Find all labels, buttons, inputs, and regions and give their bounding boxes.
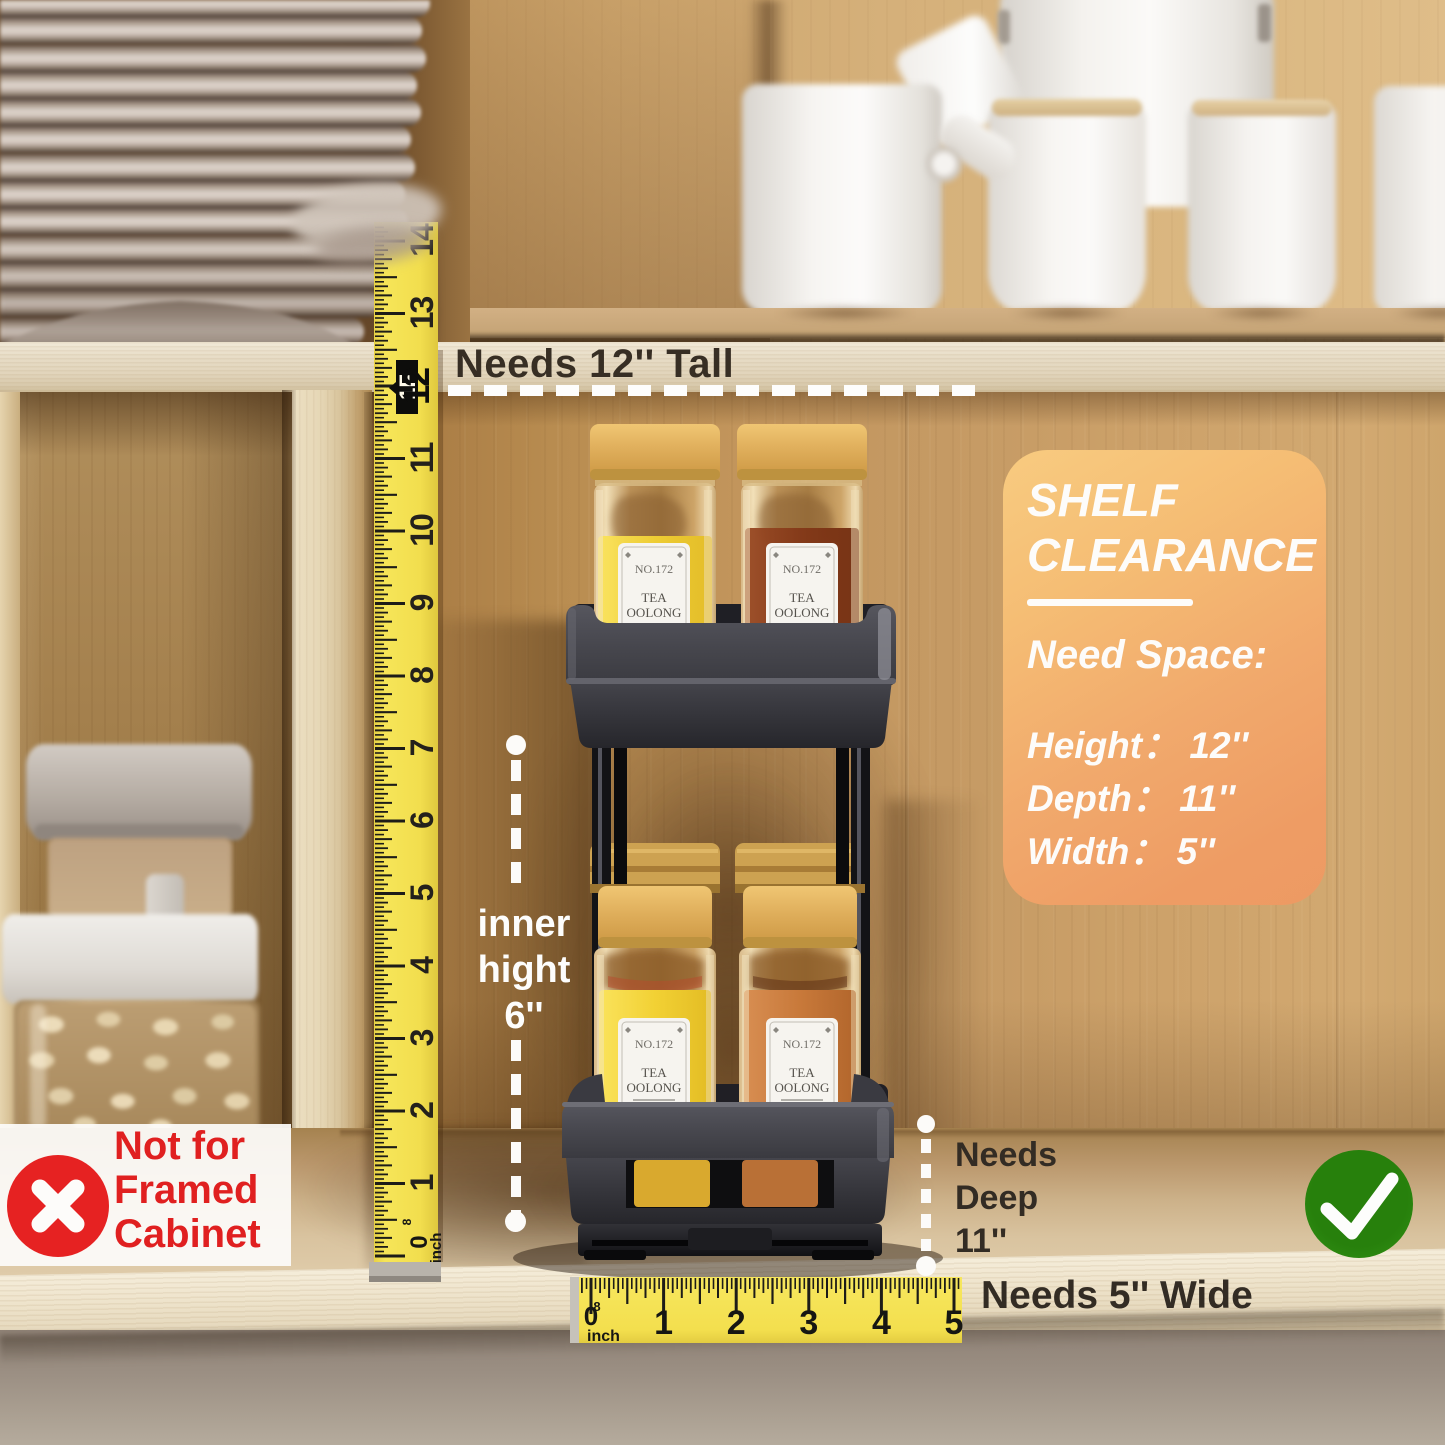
- svg-text:3: 3: [799, 1304, 818, 1342]
- svg-text:8: 8: [593, 1299, 600, 1314]
- svg-text:inch: inch: [587, 1328, 620, 1345]
- svg-text:5: 5: [945, 1304, 964, 1342]
- svg-text:4: 4: [872, 1304, 891, 1342]
- svg-text:2: 2: [727, 1304, 746, 1342]
- svg-text:1: 1: [654, 1304, 673, 1342]
